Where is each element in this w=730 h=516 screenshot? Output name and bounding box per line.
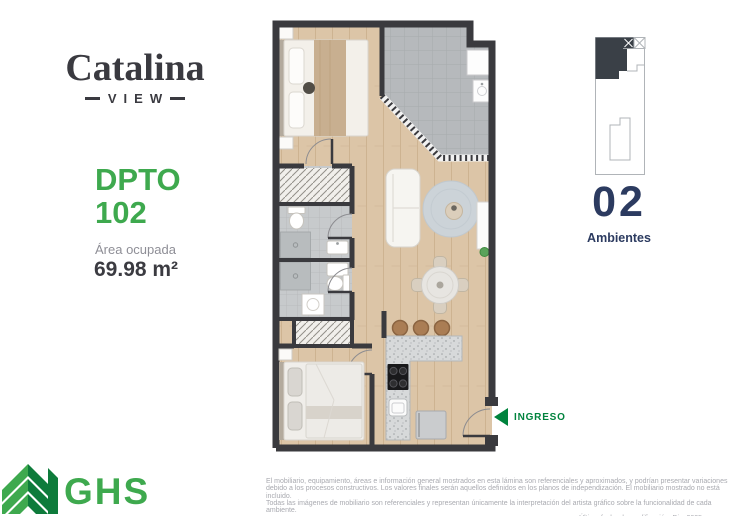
unit-number: 102 bbox=[95, 197, 147, 229]
entry-jamb bbox=[485, 397, 498, 406]
ghs-logo: GHS bbox=[0, 452, 150, 514]
disclaimer-line: El mobiliario, equipamiento, áreas e inf… bbox=[266, 478, 728, 485]
fridge bbox=[416, 411, 446, 439]
rooms-label: Ambientes bbox=[584, 231, 654, 245]
laundry-unit bbox=[467, 50, 490, 75]
bed-headboard bbox=[279, 40, 284, 136]
pillow bbox=[289, 48, 304, 84]
closet-1 bbox=[280, 168, 350, 202]
entry-label: INGRESO bbox=[514, 412, 566, 423]
disclaimer-line: Todas las imágenes de mobiliario son ref… bbox=[266, 500, 728, 515]
throw-pillow bbox=[303, 82, 315, 94]
floorplan-svg bbox=[264, 8, 512, 458]
pillow bbox=[288, 402, 302, 430]
entry-indicator: INGRESO bbox=[494, 408, 566, 426]
disclaimer-line: debido a los procesos constructivos. Los… bbox=[266, 485, 728, 500]
marketing-sheet: Catalina VIEW DPTO 102 Área ocupada 69.9… bbox=[0, 0, 730, 516]
entry-arrow-icon bbox=[494, 408, 508, 426]
unit-label: DPTO bbox=[95, 164, 181, 196]
brand-subtitle: VIEW bbox=[60, 91, 210, 106]
coffee-table bbox=[446, 203, 463, 220]
brand-subtitle-text: VIEW bbox=[108, 91, 169, 106]
bar-stool bbox=[393, 321, 408, 336]
brand-dash-right bbox=[170, 97, 185, 100]
logo-chevrons bbox=[2, 464, 58, 514]
ghs-logo-icon bbox=[0, 452, 60, 514]
toilet-tank bbox=[343, 275, 350, 292]
toilet bbox=[290, 213, 304, 229]
pillow bbox=[289, 92, 304, 128]
ghs-logo-text: GHS bbox=[64, 473, 150, 510]
closet-2 bbox=[296, 321, 350, 344]
bar-stool bbox=[414, 321, 429, 336]
rooms-count: 02 bbox=[584, 178, 654, 227]
plant bbox=[480, 248, 489, 257]
nightstand bbox=[279, 27, 293, 39]
bedroom-2 bbox=[279, 349, 364, 440]
area-caption: Área ocupada bbox=[95, 242, 176, 257]
brand-dash-left bbox=[85, 97, 100, 100]
area-value: 69.98 m² bbox=[94, 258, 178, 282]
brand-logo: Catalina VIEW bbox=[60, 48, 210, 106]
shower bbox=[281, 262, 311, 290]
floorplan-area bbox=[264, 8, 512, 463]
faucet bbox=[481, 83, 484, 86]
pillow bbox=[288, 368, 302, 396]
table-decor bbox=[451, 205, 457, 211]
washer bbox=[302, 294, 324, 315]
nightstand bbox=[279, 349, 292, 360]
shower bbox=[281, 232, 311, 258]
faucet bbox=[336, 242, 339, 245]
keyplan-svg bbox=[587, 27, 653, 177]
centerpiece bbox=[437, 282, 444, 289]
bedroom-1 bbox=[279, 27, 368, 149]
building-keyplan bbox=[587, 27, 653, 182]
bed-headboard bbox=[279, 362, 284, 440]
brand-name: Catalina bbox=[60, 48, 210, 88]
bed-throw bbox=[306, 406, 362, 419]
bar-stool bbox=[435, 321, 450, 336]
disclaimer: El mobiliario, equipamiento, áreas e inf… bbox=[266, 478, 728, 516]
nightstand bbox=[279, 137, 293, 149]
